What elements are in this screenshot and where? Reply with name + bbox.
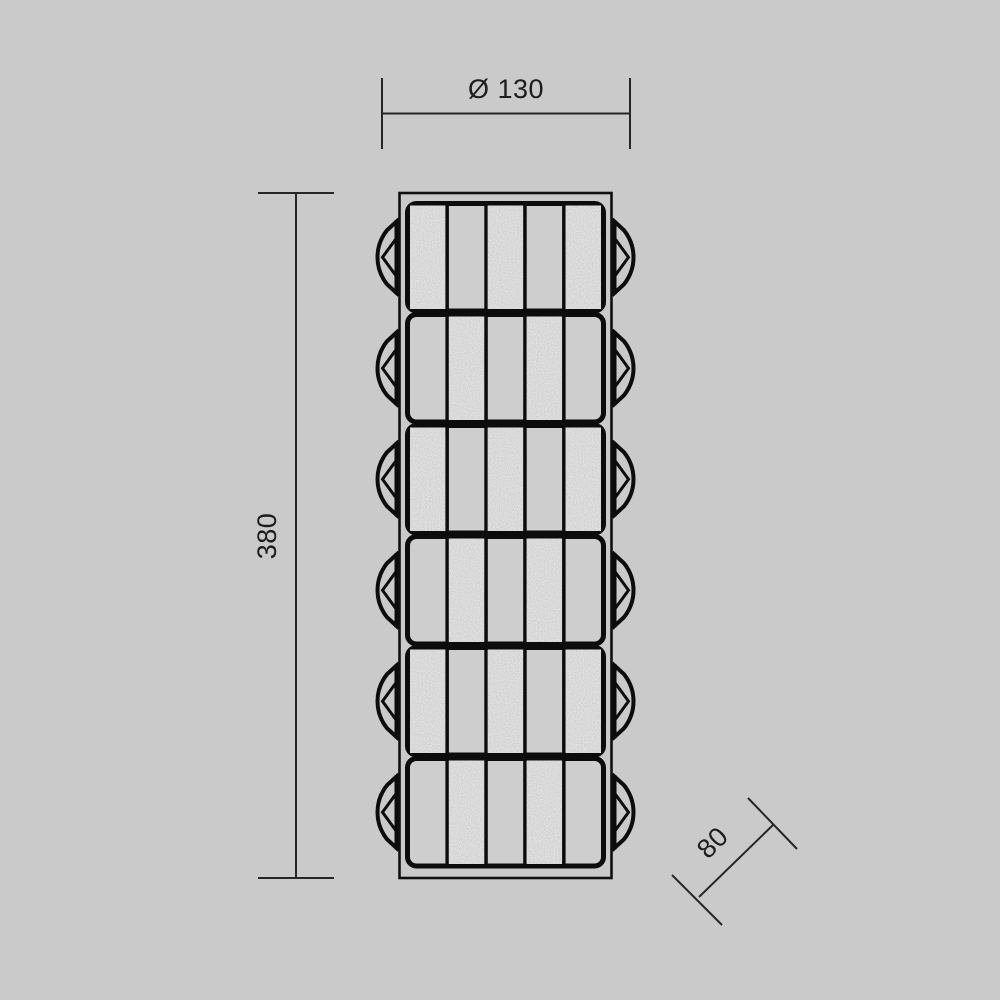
segment-bar-texture-overlay	[488, 650, 523, 754]
side-lens-left	[378, 330, 400, 406]
side-lens-left	[378, 774, 400, 850]
side-lens-right	[612, 774, 634, 850]
segment-bar-divider	[523, 539, 527, 643]
segment-bar-divider	[523, 428, 527, 532]
segment-bar-texture-overlay	[527, 761, 562, 865]
segment-bar-divider	[445, 428, 449, 532]
segment-bar-texture-overlay	[410, 428, 445, 532]
segment-bar-divider	[562, 428, 566, 532]
fixture-segment	[408, 759, 604, 867]
segment-bar-divider	[562, 317, 566, 421]
segment-bar-divider	[523, 650, 527, 754]
segment-bar-divider	[484, 317, 488, 421]
side-lens-right	[612, 552, 634, 628]
segment-bar-texture-overlay	[410, 206, 445, 310]
segment-bar-texture-overlay	[566, 650, 601, 754]
side-lens-right	[612, 663, 634, 739]
segment-bar-divider	[523, 761, 527, 865]
segment-bar-divider	[484, 206, 488, 310]
side-lens-right	[612, 330, 634, 406]
segment-bar-divider	[562, 539, 566, 643]
diameter-dimension-label: Ø 130	[468, 74, 544, 104]
segment-bar-divider	[562, 206, 566, 310]
segment-bar-divider	[445, 539, 449, 643]
side-lens-left	[378, 441, 400, 517]
side-lens-right	[612, 441, 634, 517]
segment-bar-divider	[484, 761, 488, 865]
segment-bar-divider	[445, 761, 449, 865]
segment-bar-texture-overlay	[527, 317, 562, 421]
segment-bar-texture-overlay	[488, 428, 523, 532]
segment-bar-texture-overlay	[566, 428, 601, 532]
depth-dimension-label: 80	[691, 821, 734, 864]
fixture-segments	[408, 204, 604, 867]
segment-bar-divider	[562, 650, 566, 754]
segment-bar-texture-overlay	[449, 761, 484, 865]
segment-bar-divider	[523, 317, 527, 421]
side-lens-left	[378, 663, 400, 739]
segment-bar-divider	[562, 761, 566, 865]
segment-bar-texture-overlay	[410, 650, 445, 754]
depth-dimension	[672, 798, 797, 925]
segment-bar-divider	[523, 206, 527, 310]
segment-bar-divider	[445, 206, 449, 310]
segment-bar-divider	[484, 650, 488, 754]
segment-bar-divider	[445, 317, 449, 421]
side-lens-right	[612, 219, 634, 295]
segment-bar-divider	[484, 539, 488, 643]
side-lens-left	[378, 219, 400, 295]
segment-bar-texture-overlay	[449, 317, 484, 421]
segment-bar-divider	[484, 428, 488, 532]
drawing-canvas: Ø 130 380 80	[0, 0, 1000, 1000]
segment-bar-texture-overlay	[566, 206, 601, 310]
side-lens-left	[378, 552, 400, 628]
segment-bar-texture-overlay	[488, 206, 523, 310]
height-dimension-label: 380	[252, 513, 282, 560]
segment-bar-texture-overlay	[527, 539, 562, 643]
technical-drawing: Ø 130 380 80	[0, 0, 1000, 1000]
segment-bar-divider	[445, 650, 449, 754]
fixture-segment	[408, 315, 604, 423]
segment-bar-texture-overlay	[449, 539, 484, 643]
fixture-segment	[408, 537, 604, 645]
